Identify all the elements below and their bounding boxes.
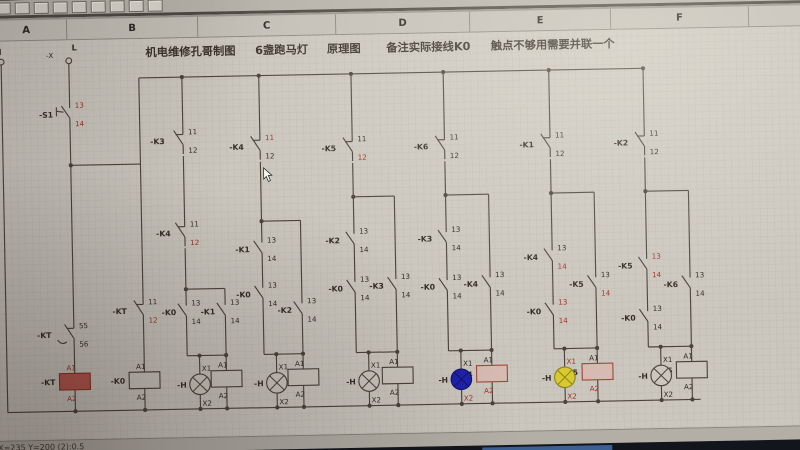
schematic-text: 14 (452, 291, 462, 300)
schematic-text: 12 (650, 147, 659, 156)
schematic-text: A2 (484, 386, 494, 395)
column-header-e[interactable]: E (470, 9, 611, 32)
schematic-text: A2 (590, 384, 600, 393)
schematic-text: -K4 (464, 280, 479, 289)
junction-dot (184, 287, 188, 291)
schematic-text: -H (542, 374, 552, 383)
schematic-text: X2 (371, 395, 381, 404)
contact--k6[interactable]: 1314-K6 (663, 268, 705, 298)
schematic-text: N (0, 47, 2, 57)
schematic-text: 13 (360, 275, 369, 284)
schematic-text: -K0 (621, 314, 636, 323)
wire (139, 68, 643, 78)
junction-dot (396, 403, 400, 407)
toolbar-icon[interactable] (129, 0, 144, 12)
schematic-text: 12 (148, 316, 157, 325)
lamp-yellow[interactable]: -HX1X2 (542, 357, 577, 402)
schematic-text: 13 (653, 304, 662, 313)
wire (643, 68, 644, 126)
schematic-text: 14 (559, 316, 569, 325)
schematic-text: 13 (268, 280, 277, 289)
schematic-text: 14 (652, 270, 662, 279)
schematic-text: A2 (295, 390, 305, 399)
junction-dot (301, 352, 305, 356)
coil-box (676, 361, 707, 378)
schematic-text: 13 (695, 270, 704, 279)
contact--k0[interactable]: 1314-K0 (236, 278, 278, 308)
wire (70, 127, 71, 165)
schematic-text: -K0 (236, 290, 251, 299)
schematic-text: 11 (190, 219, 199, 228)
contact--k0[interactable]: 1314-K0 (526, 295, 568, 325)
schematic-text: -K1 (519, 140, 534, 149)
schematic-text: -K4 (156, 229, 171, 238)
contact-lead (175, 223, 184, 238)
contact--k0[interactable]: 1314-K0 (621, 302, 663, 332)
contact-lead (639, 309, 647, 321)
schematic-text: -S1 (39, 111, 53, 120)
contact--k4[interactable]: 1112-K4 (229, 131, 275, 162)
sheet-title-type: 原理图 (327, 42, 361, 56)
wire (645, 157, 647, 249)
wire (187, 325, 188, 356)
contact-lead (134, 300, 143, 315)
wire (263, 307, 264, 354)
contact--k3[interactable]: 1314-K3 (417, 222, 461, 253)
junction-dot (549, 191, 553, 195)
schematic-text: -X (46, 51, 53, 60)
junction-dot (274, 352, 278, 356)
schematic-text: -K2 (325, 236, 340, 245)
contact-lead (541, 134, 550, 149)
application-window: A B C D E F 机电维修孔哥制图 6盏跑马灯 原理图 备注实际接线K0 … (0, 0, 800, 450)
schematic-text: 11 (649, 129, 658, 138)
contact--k1[interactable]: 1314-K1 (200, 295, 240, 325)
junction-dot (596, 399, 600, 403)
contact--k0[interactable]: 1314-K0 (328, 272, 370, 302)
toolbar-icon[interactable] (91, 0, 106, 12)
contact--k3[interactable]: 1314-K3 (369, 270, 411, 300)
contact-lead (544, 248, 552, 260)
contact--k0[interactable]: 1314-K0 (420, 271, 462, 301)
contact--k0[interactable]: 1314-K0 (161, 296, 201, 326)
schematic-text: -K6 (414, 142, 429, 151)
schematic-text: -K4 (229, 143, 244, 152)
toolbar-icon[interactable] (34, 1, 49, 13)
schematic-text: 13 (401, 272, 410, 281)
wire (353, 196, 394, 197)
schematic-text: A2 (67, 394, 77, 403)
contact-lead (294, 301, 302, 313)
schematic-text: -K2 (614, 138, 629, 147)
schematic-text: 13 (495, 270, 504, 279)
schematic-text: 11 (555, 130, 564, 139)
schematic-text: 13 (601, 270, 610, 279)
schematic-text: X1 (463, 359, 473, 368)
contact--kt[interactable]: 1112-KT (112, 295, 158, 326)
screen-photo: A B C D E F 机电维修孔哥制图 6盏跑马灯 原理图 备注实际接线K0 … (0, 0, 800, 450)
contact-lead (254, 241, 262, 253)
wire (355, 301, 356, 352)
wire (356, 352, 397, 353)
schematic-text: -K6 (663, 280, 678, 289)
sheet-note-1: 备注实际接线K0 (385, 39, 471, 55)
schematic-text: X2 (464, 394, 474, 403)
schematic-text: -K3 (150, 137, 165, 146)
schematic-text: A1 (66, 363, 76, 372)
coil-box (582, 363, 613, 380)
schematic-text: A2 (219, 391, 229, 400)
schematic-text: -K1 (201, 307, 216, 316)
contact--k6[interactable]: 1112-K6 (414, 130, 460, 161)
coil-box (288, 369, 319, 386)
contact-lead (482, 275, 490, 287)
schematic-text: A1 (483, 355, 493, 364)
schematic-text: 14 (359, 245, 369, 254)
schematic-text: 13 (307, 296, 316, 305)
contact-lead (439, 278, 447, 290)
contact-lead (588, 275, 596, 287)
schematic-text: -K5 (322, 144, 337, 153)
schematic-text: -K0 (421, 283, 436, 292)
schematic-text: X1 (371, 361, 381, 370)
contact-lead (438, 230, 446, 242)
sheet-title-author: 机电维修孔哥制图 (145, 44, 235, 60)
schematic-text: 55 (79, 321, 88, 330)
wire (448, 300, 449, 351)
schematic-text: 13 (557, 243, 566, 252)
schematic-text: L (71, 42, 76, 52)
wire (596, 297, 597, 348)
junction-dot (73, 409, 77, 413)
contact-lead (56, 111, 63, 112)
schematic-text: 14 (267, 254, 277, 263)
contact--k3[interactable]: 1112-K3 (150, 125, 198, 156)
contact--k2[interactable]: 1314-K2 (325, 224, 369, 255)
junction-dot (224, 353, 228, 357)
contact--kt[interactable]: 5556-KT (37, 319, 89, 350)
schematic-text: -H (177, 381, 187, 390)
schematic-text: 14 (653, 322, 663, 331)
schematic-text: 14 (401, 290, 411, 299)
contact-lead (178, 304, 186, 316)
contact--k5[interactable]: 1314-K5 (618, 249, 662, 280)
coil-box (59, 373, 90, 390)
schematic-text: 12 (450, 151, 459, 160)
contact-lead (346, 232, 354, 244)
schematic-text: 14 (231, 316, 241, 325)
toolbar-icon[interactable] (53, 1, 68, 13)
wire (140, 164, 143, 295)
schematic-text: X1 (567, 357, 577, 366)
coil-box (129, 372, 160, 389)
schematic-text: -KT (37, 331, 52, 340)
junction-dot (441, 70, 445, 74)
schematic-text: A2 (684, 382, 694, 391)
junction-dot (225, 406, 229, 410)
schematic-text: -H (438, 376, 448, 385)
schematic-text: 12 (188, 146, 197, 155)
wire (549, 70, 550, 128)
schematic-text: -K5 (618, 261, 633, 270)
schematic-text: -H (346, 377, 356, 386)
wire (69, 64, 70, 99)
schematic-text: 13 (267, 235, 276, 244)
schematic-text: X2 (567, 392, 577, 401)
column-header-a[interactable]: A (0, 19, 67, 41)
junction-dot (643, 189, 647, 193)
schematic-text: 13 (558, 297, 567, 306)
schematic-text: 11 (357, 134, 366, 143)
junction-dot (366, 350, 370, 354)
coil-box (211, 370, 242, 387)
column-header-c[interactable]: C (198, 14, 336, 37)
contact--k5[interactable]: 1314-K5 (569, 268, 611, 298)
terminal-circle (0, 59, 4, 65)
wire (300, 220, 301, 294)
contact-lead (255, 286, 263, 298)
schematic-text: X1 (202, 364, 212, 373)
junction-dot (257, 74, 261, 78)
schematic-text: A2 (390, 388, 400, 397)
schematic-text: -H (638, 372, 648, 381)
contact--k2[interactable]: 1314-K2 (277, 294, 317, 324)
schematic-text: 14 (360, 293, 370, 302)
junction-dot (562, 347, 566, 351)
junction-dot (395, 350, 399, 354)
schematic-text: 12 (190, 238, 199, 247)
schematic-text: 12 (265, 151, 274, 160)
coil--kt[interactable]: -KTA1A2 (41, 363, 91, 404)
schematic-text: A1 (218, 360, 228, 369)
schematic-text: X2 (202, 399, 212, 408)
schematic-text: 56 (79, 339, 89, 348)
wire (396, 299, 397, 352)
wire (551, 192, 594, 193)
wire (187, 355, 226, 356)
schematic-text: -KT (41, 378, 56, 387)
wire (186, 288, 225, 289)
schematic-text: -K0 (111, 377, 126, 386)
wire (594, 192, 595, 268)
schematic-text: 11 (265, 133, 274, 142)
wire (449, 350, 492, 351)
schematic-text: A2 (137, 393, 147, 402)
wire (554, 348, 597, 349)
junction-dot (490, 401, 494, 405)
coil-box (382, 367, 413, 384)
toolbar-icon[interactable] (15, 2, 30, 14)
contact-lead (347, 280, 355, 292)
wire (394, 196, 395, 270)
contact--k2[interactable]: 1112-K2 (613, 126, 659, 157)
wire (71, 165, 74, 319)
sheet-note-2: 触点不够用需要并联一个 (490, 36, 616, 52)
wire (443, 72, 444, 130)
toolbar-icon[interactable] (148, 0, 163, 11)
schematic-text: X1 (663, 355, 673, 364)
coil-box (476, 365, 507, 382)
wire (445, 161, 446, 222)
schematic-text: 14 (268, 299, 278, 308)
schematic-text: 14 (307, 315, 317, 324)
schematic-text: A1 (295, 359, 305, 368)
wire (139, 78, 141, 164)
contact--k4[interactable]: 1112-K4 (156, 217, 199, 247)
contact--k1[interactable]: 1314-K1 (235, 233, 277, 263)
wire (259, 76, 260, 131)
wire (353, 163, 354, 224)
junction-dot (351, 195, 355, 199)
schematic-text: -K1 (235, 245, 250, 254)
toolbar-icon[interactable] (72, 0, 87, 12)
junction-dot (349, 72, 353, 76)
junction-dot (259, 219, 263, 223)
column-header-b[interactable]: B (67, 17, 198, 40)
cursor-coordinates: X=235 Y=200 (2):0.5 (0, 442, 84, 450)
wire (690, 297, 691, 346)
contact--k1[interactable]: 1112-K1 (519, 128, 565, 159)
wire (645, 190, 688, 191)
junction-dot (69, 163, 73, 167)
schematic-text: X1 (279, 362, 289, 371)
schematic-text: 14 (496, 288, 506, 297)
contact-lead (388, 277, 396, 289)
schematic-text: A1 (589, 353, 599, 362)
junction-dot (547, 68, 551, 72)
junction-dot (689, 344, 693, 348)
timer-mark (58, 340, 67, 344)
schematic-text: A1 (389, 357, 399, 366)
lamp-white[interactable]: -HX1X2 (177, 364, 212, 409)
schematic-text: -K3 (369, 282, 384, 291)
schematic-text: 13 (452, 273, 461, 282)
schematic-text: 13 (652, 252, 661, 261)
toolbar-icon[interactable] (110, 0, 125, 12)
contact-lead (635, 132, 644, 147)
contact-lead (638, 257, 646, 269)
lamp-white[interactable]: -HX1X2 (254, 362, 289, 407)
schematic-text: 14 (558, 262, 568, 271)
schematic-text: 13 (451, 225, 460, 234)
schematic-canvas[interactable]: 机电维修孔哥制图 6盏跑马灯 原理图 备注实际接线K0 触点不够用需要并联一个 … (0, 26, 800, 441)
junction-dot (489, 348, 493, 352)
contact-lead (435, 136, 444, 151)
wire (183, 156, 184, 217)
contact--k5[interactable]: 1112-K5 (321, 132, 367, 163)
column-header-f[interactable]: F (611, 6, 749, 29)
schematic-text: 14 (75, 119, 85, 128)
schematic-text: 13 (191, 298, 200, 307)
contact-lead (65, 324, 74, 339)
schematic-text: 13 (359, 226, 368, 235)
schematic-text: -H (254, 379, 264, 388)
wire (182, 77, 183, 125)
contact-lead (545, 303, 553, 315)
contact-lead (343, 137, 352, 152)
wire (1, 65, 8, 412)
wire (351, 74, 352, 132)
schematic-text: A1 (136, 362, 146, 371)
junction-dot (302, 405, 306, 409)
junction-dot (180, 75, 184, 79)
contact--k4[interactable]: 1314-K4 (523, 241, 567, 272)
wire (71, 164, 141, 165)
schematic-text: X2 (664, 390, 674, 399)
schematic-text: -K0 (328, 284, 343, 293)
contact-lead (682, 275, 690, 287)
contact--k4[interactable]: 1314-K4 (463, 268, 505, 298)
schematic-text: -KT (112, 307, 127, 316)
schematic-text: 11 (148, 297, 157, 306)
contact-lead (217, 303, 225, 315)
wire (491, 297, 492, 350)
column-header-extra (749, 5, 800, 26)
terminal-circle (66, 58, 72, 64)
schematic-text: 13 (75, 101, 84, 110)
lamp-white[interactable]: -HX1X2 (638, 355, 673, 400)
schematic-text: 14 (695, 289, 705, 298)
schematic-text: 14 (601, 288, 611, 297)
toolbar-icon[interactable] (0, 2, 11, 14)
contact--s1[interactable]: 1314-S1 (39, 98, 85, 129)
sheet-title-project: 6盏跑马灯 (255, 42, 309, 57)
schematic-text: -K4 (524, 253, 539, 262)
junction-dot (659, 345, 663, 349)
junction-dot (443, 193, 447, 197)
wire (550, 159, 552, 241)
wire (446, 194, 489, 195)
wire (302, 323, 303, 354)
schematic-text: 11 (449, 132, 458, 141)
schematic-text: -K0 (527, 307, 542, 316)
contact-lead (174, 130, 183, 145)
schematic-text: A1 (683, 351, 693, 360)
taskbar-window-2[interactable] (482, 445, 612, 450)
schematic-text: -K2 (277, 306, 292, 315)
schematic-text: -K0 (162, 308, 177, 317)
schematic-text: 12 (555, 149, 564, 158)
contact-lead (251, 136, 260, 151)
junction-dot (197, 354, 201, 358)
wire (489, 194, 490, 268)
wire (261, 220, 300, 221)
column-header-d[interactable]: D (336, 12, 470, 35)
junction-dot (143, 408, 147, 412)
wire (688, 190, 689, 268)
schematic-text: 14 (192, 317, 202, 326)
schematic-text: X2 (279, 397, 289, 406)
wire (264, 354, 303, 355)
schematic-text: 12 (358, 153, 367, 162)
junction-dot (595, 346, 599, 350)
lamp-blue[interactable]: -HX1X2 (438, 359, 473, 404)
junction-dot (641, 66, 645, 70)
schematic-text: -K5 (569, 280, 584, 289)
schematic-text: 11 (188, 127, 197, 136)
junction-dot (690, 397, 694, 401)
lamp-white[interactable]: -HX1X2 (346, 361, 381, 406)
coil--k0[interactable]: -K0A1A2 (110, 362, 160, 403)
wire (226, 324, 227, 355)
wire (648, 346, 691, 347)
schematic-text: 14 (452, 243, 462, 252)
mouse-cursor (264, 168, 272, 182)
schematic-text: -K3 (418, 234, 433, 243)
junction-dot (459, 349, 463, 353)
